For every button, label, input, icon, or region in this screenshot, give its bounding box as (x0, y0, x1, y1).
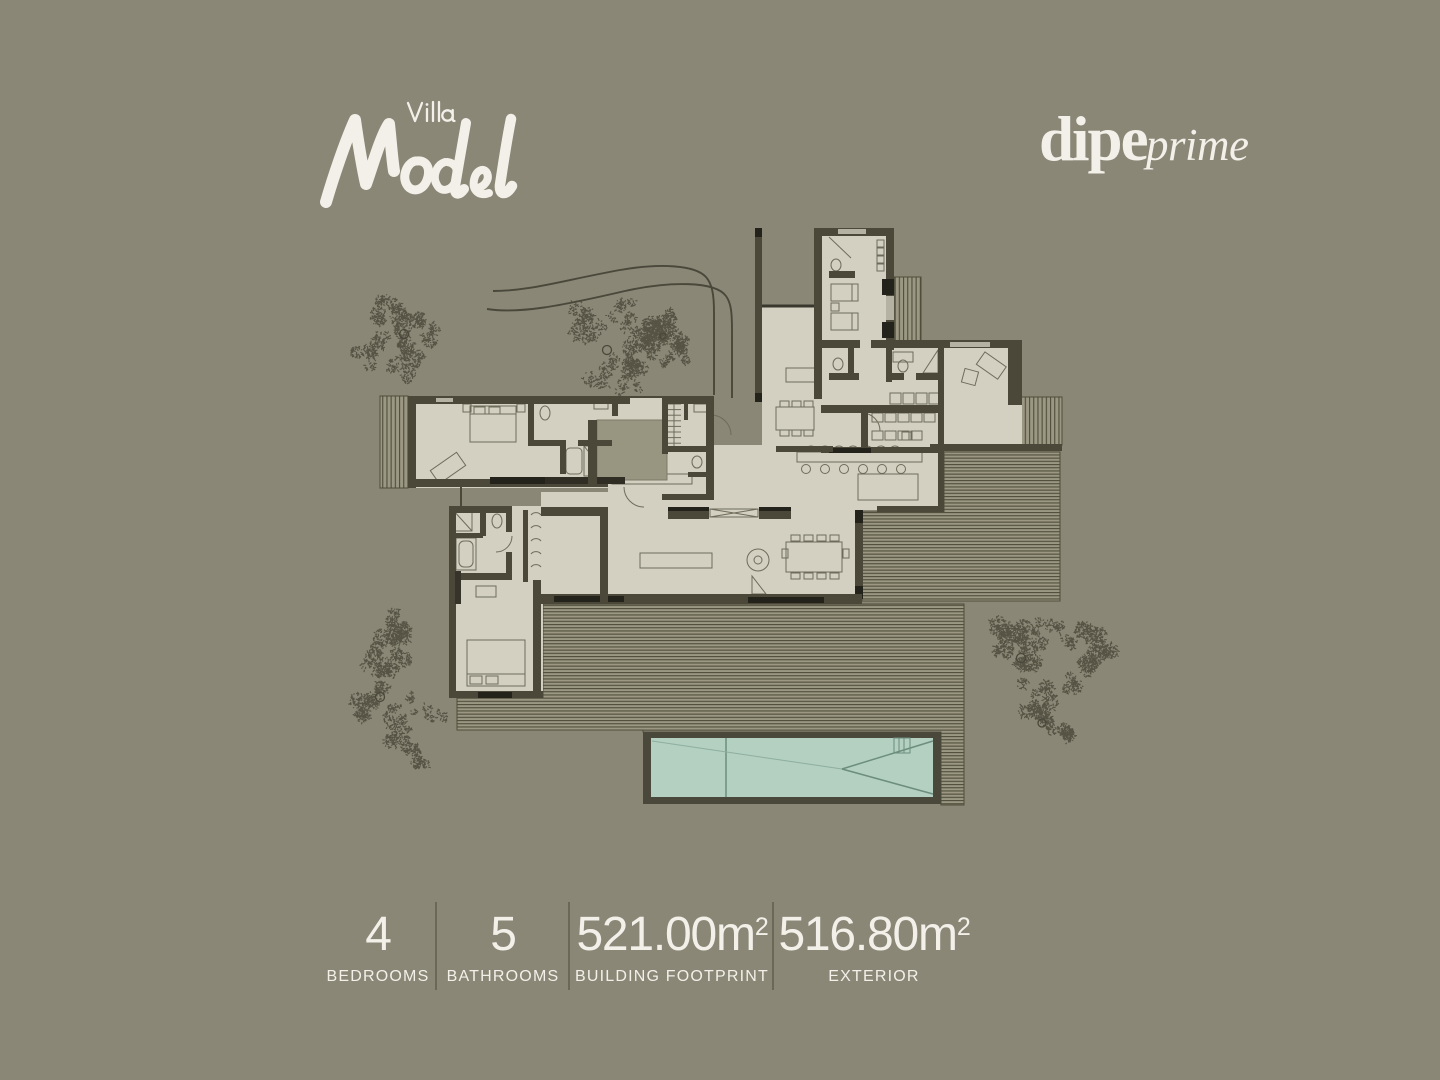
svg-text:prime: prime (1143, 120, 1249, 170)
svg-text:521.00m2: 521.00m2 (576, 908, 767, 961)
svg-text:dipe: dipe (1039, 104, 1148, 174)
svg-text:4: 4 (365, 908, 391, 961)
svg-text:5: 5 (490, 908, 516, 961)
svg-text:516.80m2: 516.80m2 (778, 908, 969, 961)
svg-text:BUILDING FOOTPRINT: BUILDING FOOTPRINT (575, 968, 769, 985)
svg-text:EXTERIOR: EXTERIOR (828, 968, 919, 985)
svg-text:BATHROOMS: BATHROOMS (447, 968, 560, 985)
svg-text:BEDROOMS: BEDROOMS (327, 968, 430, 985)
